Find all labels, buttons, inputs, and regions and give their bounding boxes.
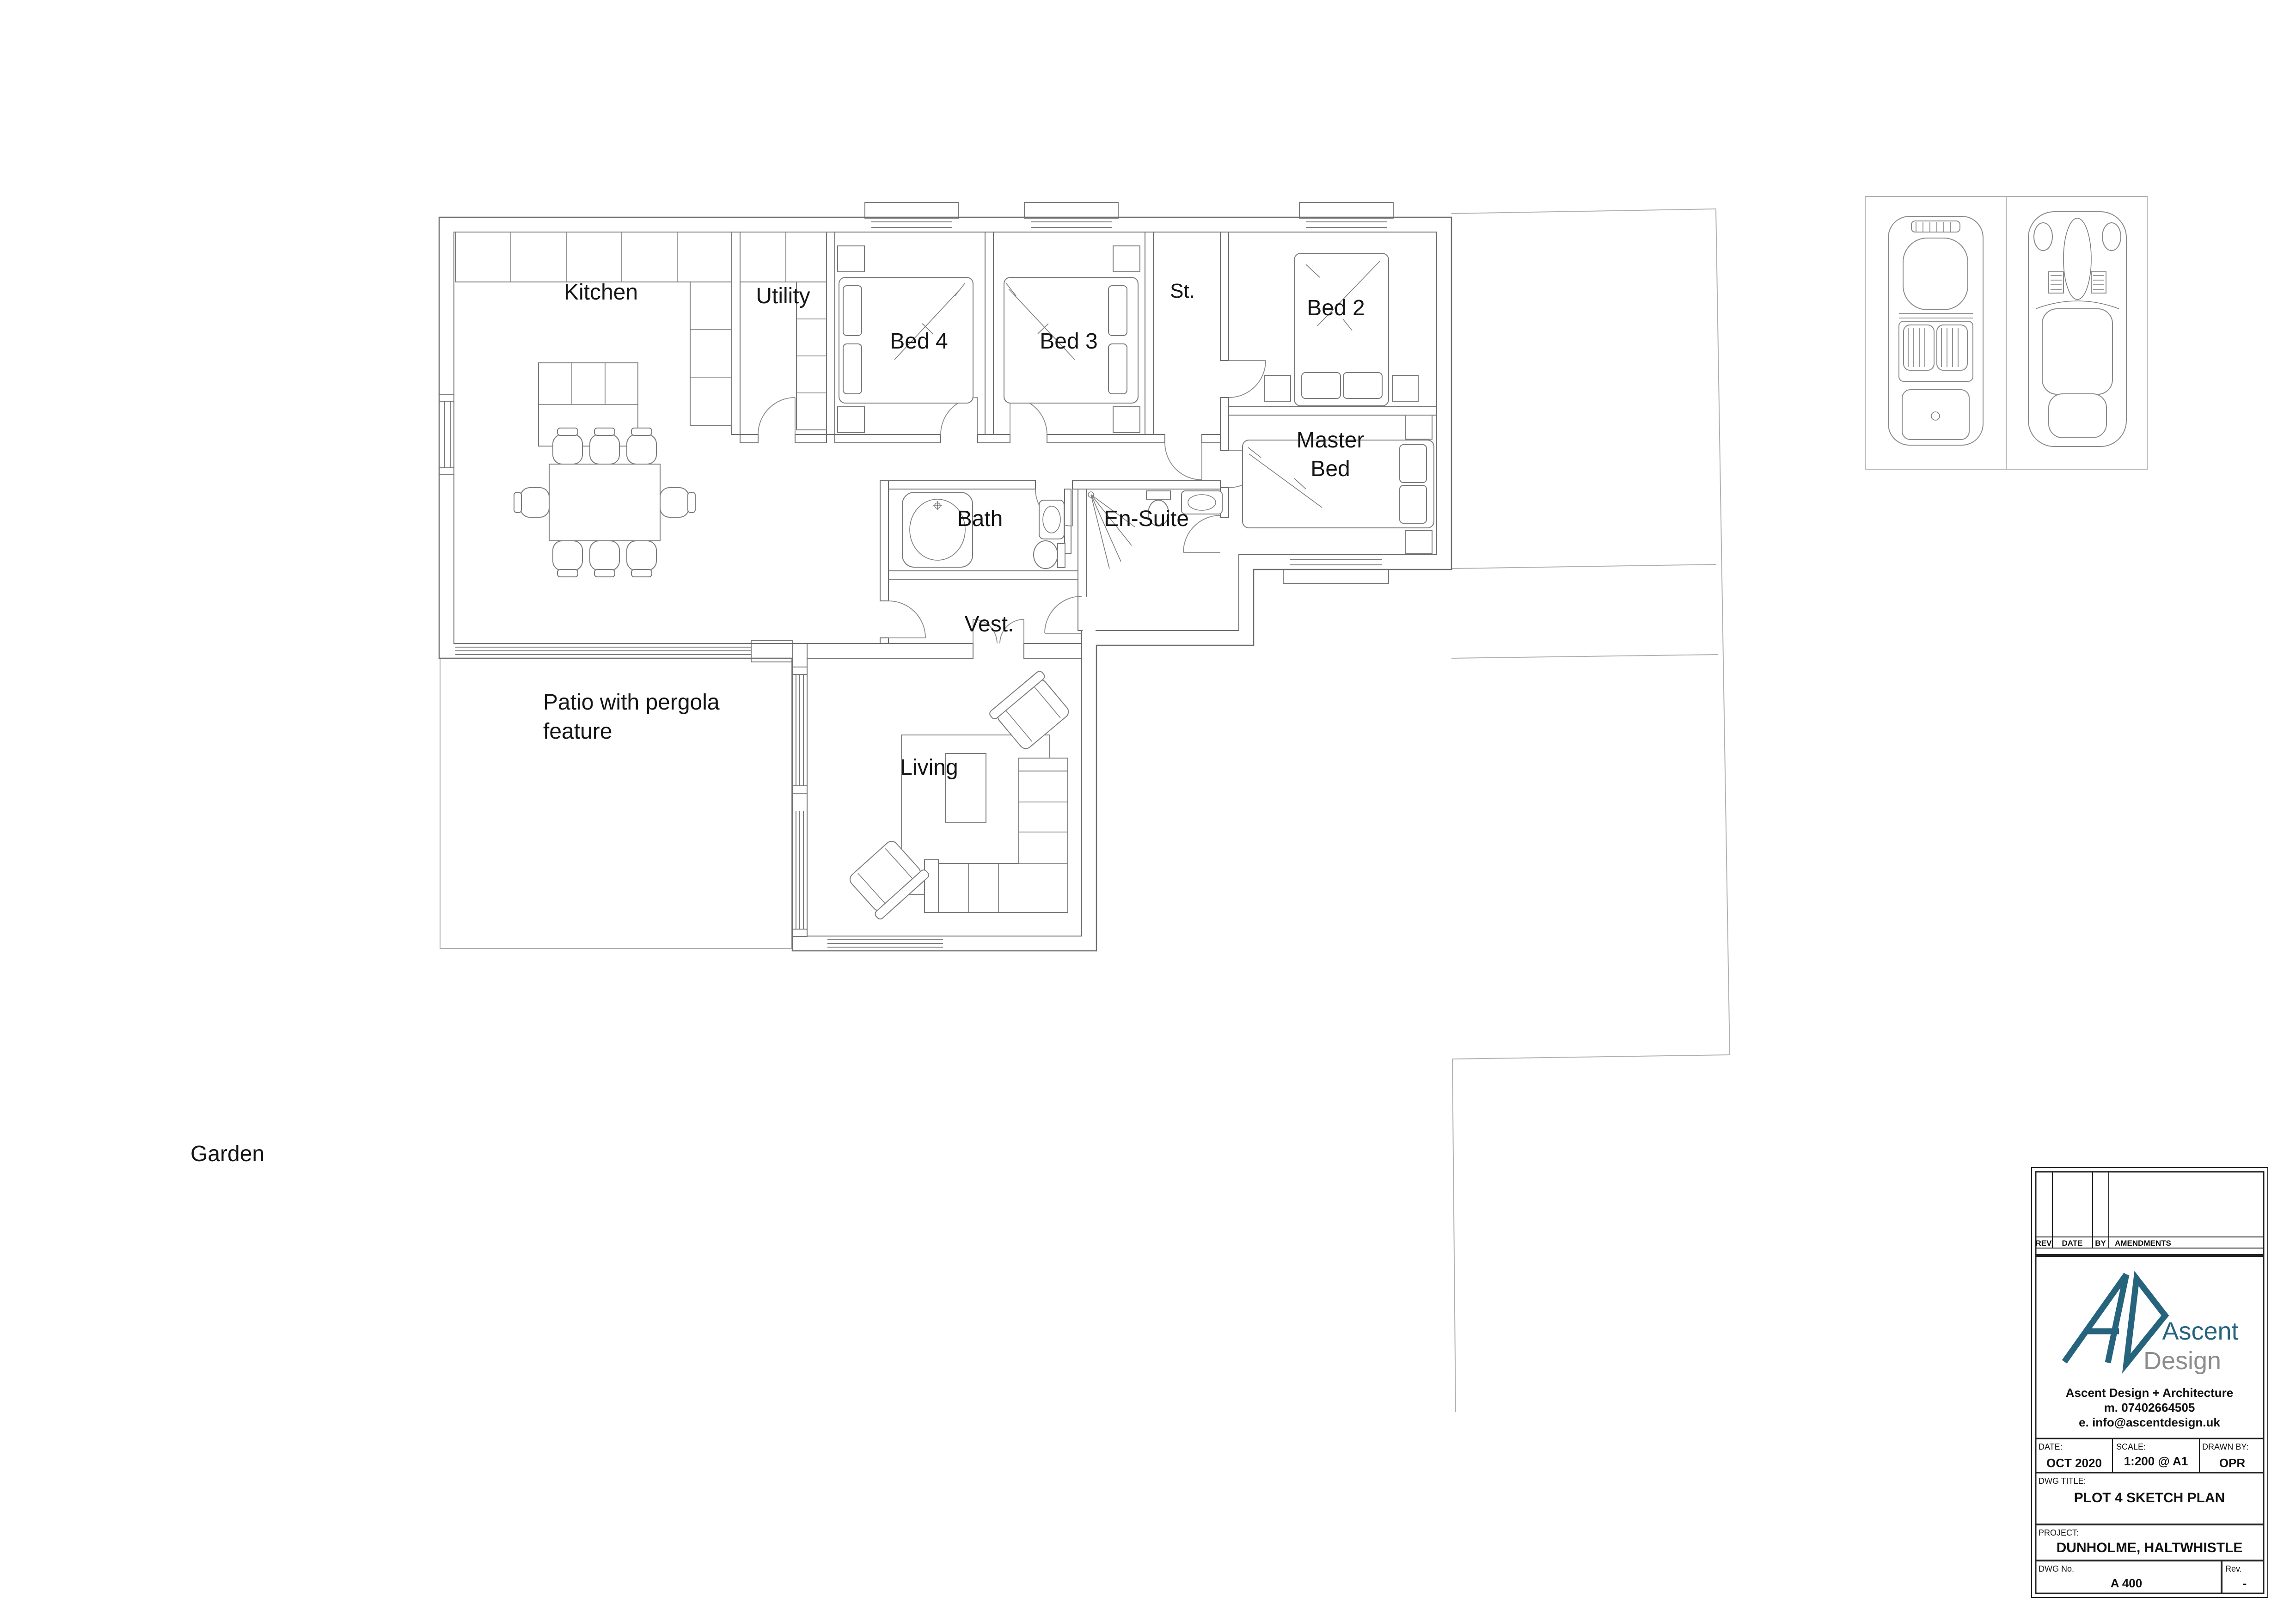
drawing-sheet: Kitchen Utility Bed 4 Bed 3 St. Bed 2 Ma… — [0, 0, 2296, 1622]
revision-table: REV DATE BY AMENDMENTS — [2036, 1172, 2264, 1255]
dwg-no-value: A 400 — [2111, 1576, 2142, 1590]
car-convertible-topview-icon — [1888, 216, 1983, 445]
car-coupe-topview-icon — [2028, 212, 2126, 447]
dwg-number-section: DWG No. A 400 Rev. - — [2039, 1561, 2247, 1593]
vest-entrance-opening — [1083, 597, 1096, 632]
project-section: PROJECT: DUNHOLME, HALTWHISTLE — [2036, 1528, 2264, 1561]
dwg-title-section: DWG TITLE: PLOT 4 SKETCH PLAN — [2036, 1476, 2264, 1524]
bed4-label: Bed 4 — [890, 329, 948, 354]
master-bed-label-line2: Bed — [1310, 457, 1350, 481]
drawn-by-label: DRAWN BY: — [2202, 1442, 2248, 1451]
contact-block: Ascent Design + Architecture m. 07402664… — [2066, 1386, 2233, 1429]
patio-label-line1: Patio with pergola — [543, 690, 720, 715]
date-label: DATE: — [2039, 1442, 2063, 1451]
scale-value: 1:200 @ A1 — [2124, 1454, 2188, 1468]
date-value: OCT 2020 — [2046, 1456, 2102, 1470]
brand-name-ascent: Ascent — [2162, 1317, 2238, 1345]
by-col-header: BY — [2095, 1239, 2106, 1248]
window-left-wall — [439, 395, 454, 474]
st-label: St. — [1170, 280, 1195, 302]
rev-col-header: REV — [2036, 1239, 2052, 1248]
dwg-title-label: DWG TITLE: — [2039, 1476, 2086, 1486]
rev-value: - — [2243, 1576, 2247, 1590]
project-label: PROJECT: — [2039, 1528, 2079, 1537]
kitchen-island — [539, 363, 638, 446]
brand-name-design: Design — [2143, 1347, 2221, 1375]
amendments-col-header: AMENDMENTS — [2115, 1239, 2171, 1248]
ensuite-label: En-Suite — [1104, 507, 1189, 531]
plot-4-sketch-plan-drawing: Kitchen Utility Bed 4 Bed 3 St. Bed 2 Ma… — [0, 0, 2296, 1622]
living-label: Living — [900, 755, 958, 780]
email-address: e. info@ascentdesign.uk — [2079, 1415, 2220, 1429]
company-name: Ascent Design + Architecture — [2066, 1386, 2233, 1400]
rev-label: Rev. — [2225, 1564, 2242, 1573]
bath-label: Bath — [957, 507, 1003, 531]
utility-label: Utility — [756, 284, 810, 308]
bath-sink-icon — [1039, 500, 1064, 539]
kitchen-label: Kitchen — [564, 280, 638, 305]
bed3-label: Bed 3 — [1040, 329, 1097, 354]
date-scale-drawnby-row: DATE: OCT 2020 SCALE: 1:200 @ A1 DRAWN B… — [2036, 1438, 2264, 1473]
living-south-glazing — [827, 937, 943, 950]
phone-number: m. 07402664505 — [2104, 1401, 2195, 1414]
drawn-by-value: OPR — [2219, 1456, 2246, 1470]
garden-label: Garden — [190, 1142, 264, 1166]
property-boundary-lines — [1451, 209, 1730, 1412]
patio-label-line2: feature — [543, 719, 612, 744]
date-col-header: DATE — [2062, 1239, 2082, 1248]
window-master-south — [1283, 556, 1389, 583]
title-block: REV DATE BY AMENDMENTS Ascent Design Asc… — [2032, 1168, 2268, 1598]
project-value: DUNHOLME, HALTWHISTLE — [2057, 1540, 2243, 1555]
bath-toilet-icon — [1034, 541, 1065, 569]
bed2-label: Bed 2 — [1307, 296, 1365, 320]
vest-label: Vest. — [965, 612, 1014, 637]
scale-label: SCALE: — [2116, 1442, 2146, 1451]
ascent-design-logo: Ascent Design — [2064, 1274, 2239, 1375]
master-bed-label-line1: Master — [1297, 428, 1365, 453]
dwg-title-value: PLOT 4 SKETCH PLAN — [2074, 1490, 2225, 1506]
dwg-no-label: DWG No. — [2039, 1564, 2074, 1573]
